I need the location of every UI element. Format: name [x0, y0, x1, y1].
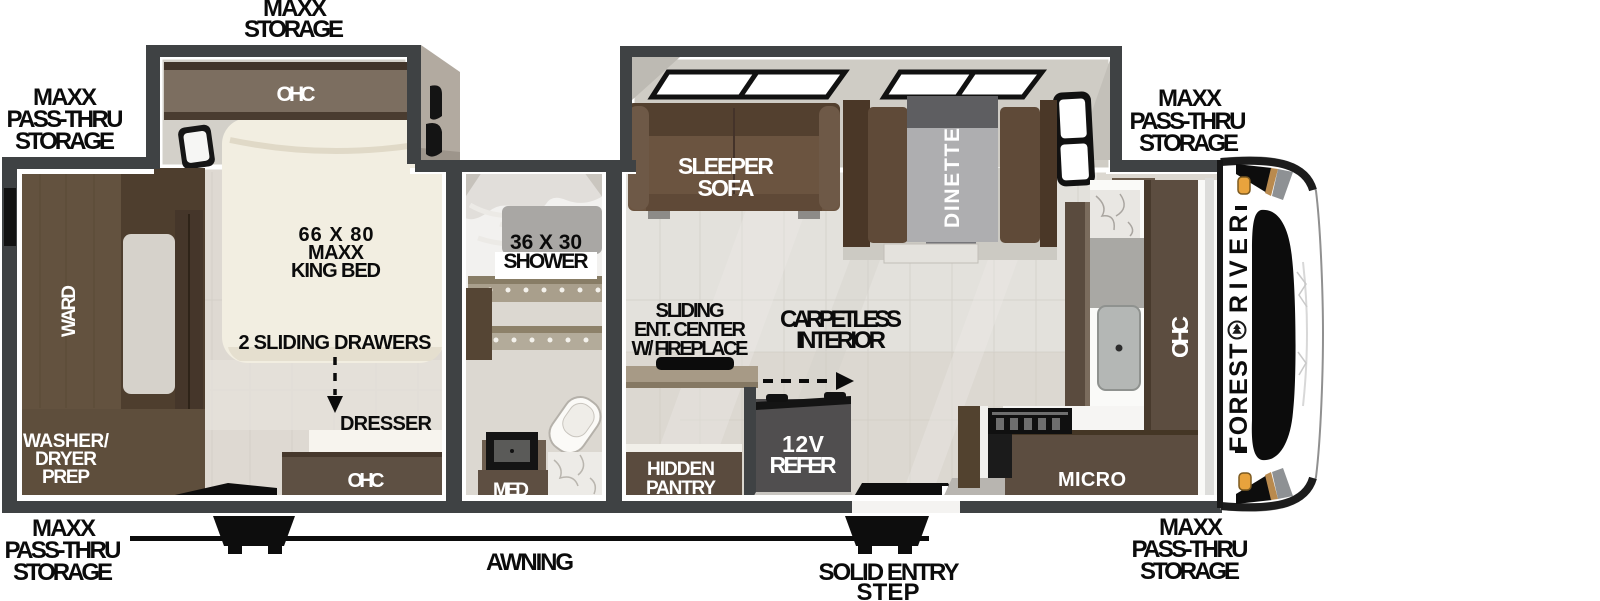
svg-text:FOREST: FOREST [1225, 342, 1253, 452]
svg-text:KING BED: KING BED [291, 260, 381, 282]
svg-text:2 SLIDING DRAWERS: 2 SLIDING DRAWERS [239, 332, 432, 354]
svg-text:REFER: REFER [770, 452, 837, 478]
svg-text:HIDDEN: HIDDEN [647, 459, 715, 480]
svg-text:STORAGE: STORAGE [1140, 558, 1240, 585]
svg-text:WARD: WARD [59, 285, 80, 337]
svg-text:OHC: OHC [1167, 316, 1193, 358]
svg-text:DRESSER: DRESSER [340, 413, 433, 435]
svg-text:STORAGE: STORAGE [15, 128, 115, 155]
svg-text:PREP: PREP [42, 467, 90, 488]
svg-text:DINETTE: DINETTE [941, 128, 964, 228]
svg-text:OHC: OHC [348, 470, 385, 492]
svg-text:RIVER: RIVER [1225, 213, 1253, 313]
svg-text:SHOWER: SHOWER [504, 250, 589, 273]
svg-text:AWNING: AWNING [486, 549, 574, 576]
svg-text:W/ FIREPLACE: W/ FIREPLACE [632, 338, 749, 360]
svg-text:STORAGE: STORAGE [13, 559, 113, 586]
svg-text:MICRO: MICRO [1058, 469, 1126, 491]
svg-text:SOFA: SOFA [698, 175, 755, 201]
svg-text:STEP: STEP [857, 579, 920, 601]
svg-text:OHC: OHC [277, 83, 316, 106]
svg-text:STORAGE: STORAGE [244, 16, 344, 43]
svg-text:STORAGE: STORAGE [1139, 130, 1239, 157]
svg-text:INTERIOR: INTERIOR [796, 327, 886, 354]
